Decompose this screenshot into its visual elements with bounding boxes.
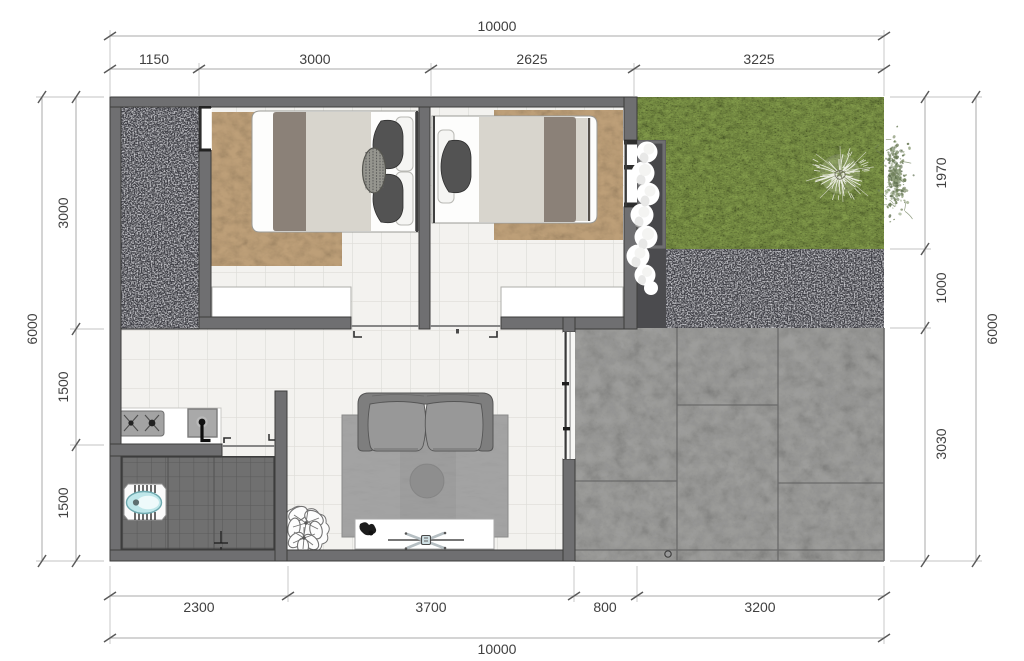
- svg-text:3030: 3030: [933, 428, 949, 459]
- svg-text:3200: 3200: [744, 599, 775, 615]
- svg-text:800: 800: [593, 599, 617, 615]
- svg-text:10000: 10000: [478, 641, 517, 657]
- svg-text:2300: 2300: [183, 599, 214, 615]
- svg-text:1150: 1150: [139, 51, 169, 67]
- svg-text:2625: 2625: [516, 51, 547, 67]
- svg-text:1500: 1500: [55, 371, 71, 402]
- svg-text:1970: 1970: [933, 157, 949, 188]
- svg-text:3700: 3700: [415, 599, 446, 615]
- svg-text:3000: 3000: [55, 197, 71, 228]
- svg-text:1500: 1500: [55, 487, 71, 518]
- svg-text:10000: 10000: [478, 18, 517, 34]
- svg-text:6000: 6000: [24, 313, 40, 344]
- svg-text:6000: 6000: [984, 313, 1000, 344]
- svg-text:3225: 3225: [743, 51, 774, 67]
- svg-text:1000: 1000: [933, 272, 949, 303]
- svg-text:3000: 3000: [299, 51, 330, 67]
